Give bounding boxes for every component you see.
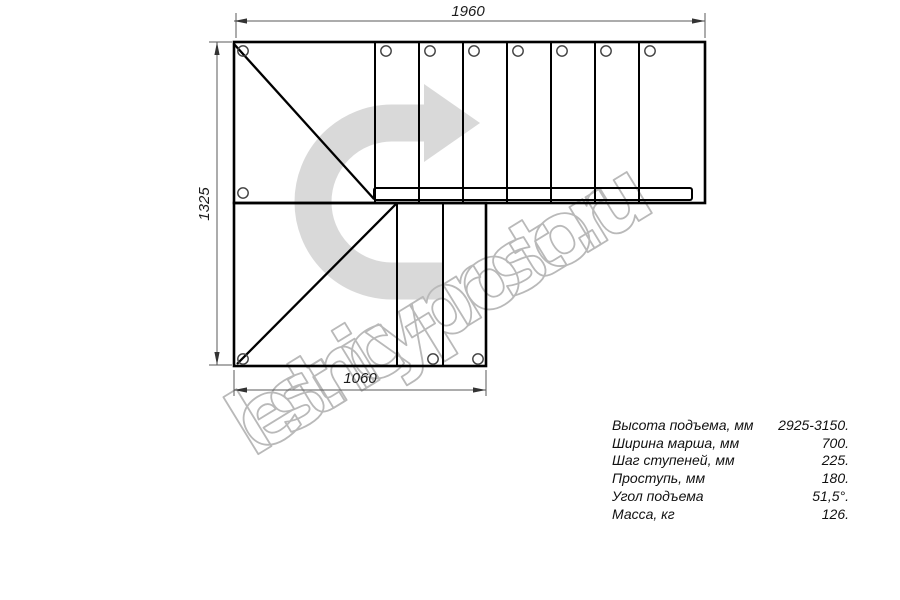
- spec-value: 2925-3150.: [778, 417, 849, 435]
- spec-row-height: Высота подъема, мм 2925-3150.: [612, 417, 849, 435]
- spec-value: 126.: [822, 506, 849, 524]
- spec-row-mass: Масса, кг 126.: [612, 506, 849, 524]
- dim-arrow-right: [692, 18, 705, 23]
- staircase-drawing-page: lestnicy-prosto.ru: [0, 0, 900, 600]
- direction-arrow-head: [424, 84, 480, 162]
- spec-value: 225.: [822, 452, 849, 470]
- spec-row-angle: Угол подъема 51,5°.: [612, 488, 849, 506]
- dim-arrow-bottom: [214, 352, 219, 365]
- dim-arrow-top: [214, 42, 219, 55]
- spec-value: 51,5°.: [812, 488, 849, 506]
- spec-label: Ширина марша, мм: [612, 435, 739, 453]
- spec-row-flight-width: Ширина марша, мм 700.: [612, 435, 849, 453]
- dimension-bottom-value: 1060: [343, 370, 377, 387]
- dimension-top: 1960: [234, 3, 705, 38]
- spec-label: Масса, кг: [612, 506, 675, 524]
- spec-table: Высота подъема, мм 2925-3150. Ширина мар…: [612, 417, 849, 523]
- spec-row-tread: Проступь, мм 180.: [612, 470, 849, 488]
- spec-value: 180.: [822, 470, 849, 488]
- spec-row-step-pitch: Шаг ступеней, мм 225.: [612, 452, 849, 470]
- spec-label: Угол подъема: [612, 488, 704, 506]
- dimension-left: 1325: [196, 42, 232, 365]
- spec-label: Шаг ступеней, мм: [612, 452, 735, 470]
- dim-arrow-right: [473, 387, 486, 392]
- spec-value: 700.: [822, 435, 849, 453]
- spec-label: Проступь, мм: [612, 470, 705, 488]
- dimension-left-value: 1325: [196, 187, 213, 221]
- dimension-top-value: 1960: [451, 3, 485, 20]
- spec-label: Высота подъема, мм: [612, 417, 754, 435]
